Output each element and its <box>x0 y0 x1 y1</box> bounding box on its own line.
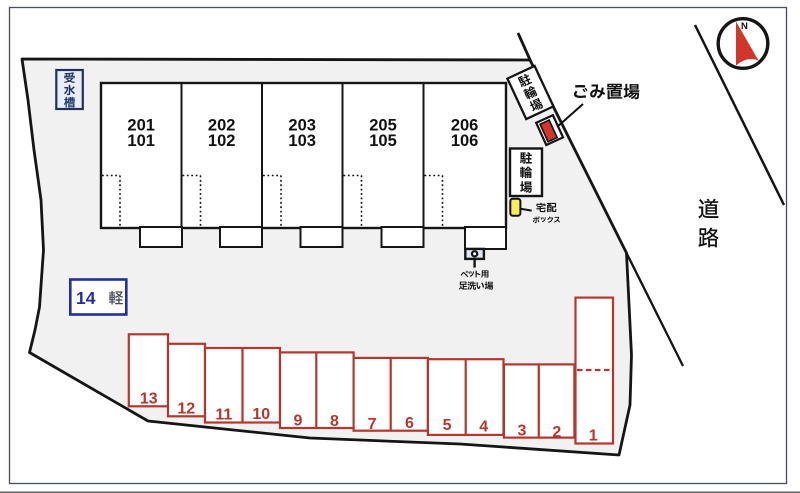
svg-text:N: N <box>741 21 748 32</box>
svg-text:102: 102 <box>208 132 236 150</box>
svg-text:9: 9 <box>294 413 303 430</box>
svg-text:8: 8 <box>330 413 339 430</box>
svg-text:103: 103 <box>288 132 316 150</box>
svg-text:6: 6 <box>405 415 414 432</box>
svg-text:12: 12 <box>177 401 195 418</box>
svg-text:101: 101 <box>127 132 155 150</box>
svg-text:7: 7 <box>368 416 377 433</box>
svg-text:11: 11 <box>215 407 232 424</box>
svg-text:10: 10 <box>252 406 270 423</box>
svg-text:13: 13 <box>140 391 158 408</box>
svg-text:2: 2 <box>552 424 561 441</box>
svg-text:106: 106 <box>451 132 479 150</box>
svg-text:3: 3 <box>517 423 526 440</box>
svg-text:1: 1 <box>589 428 598 445</box>
svg-text:105: 105 <box>369 132 397 150</box>
svg-text:5: 5 <box>443 417 452 434</box>
svg-text:4: 4 <box>479 419 488 436</box>
svg-text:14: 14 <box>76 288 96 308</box>
